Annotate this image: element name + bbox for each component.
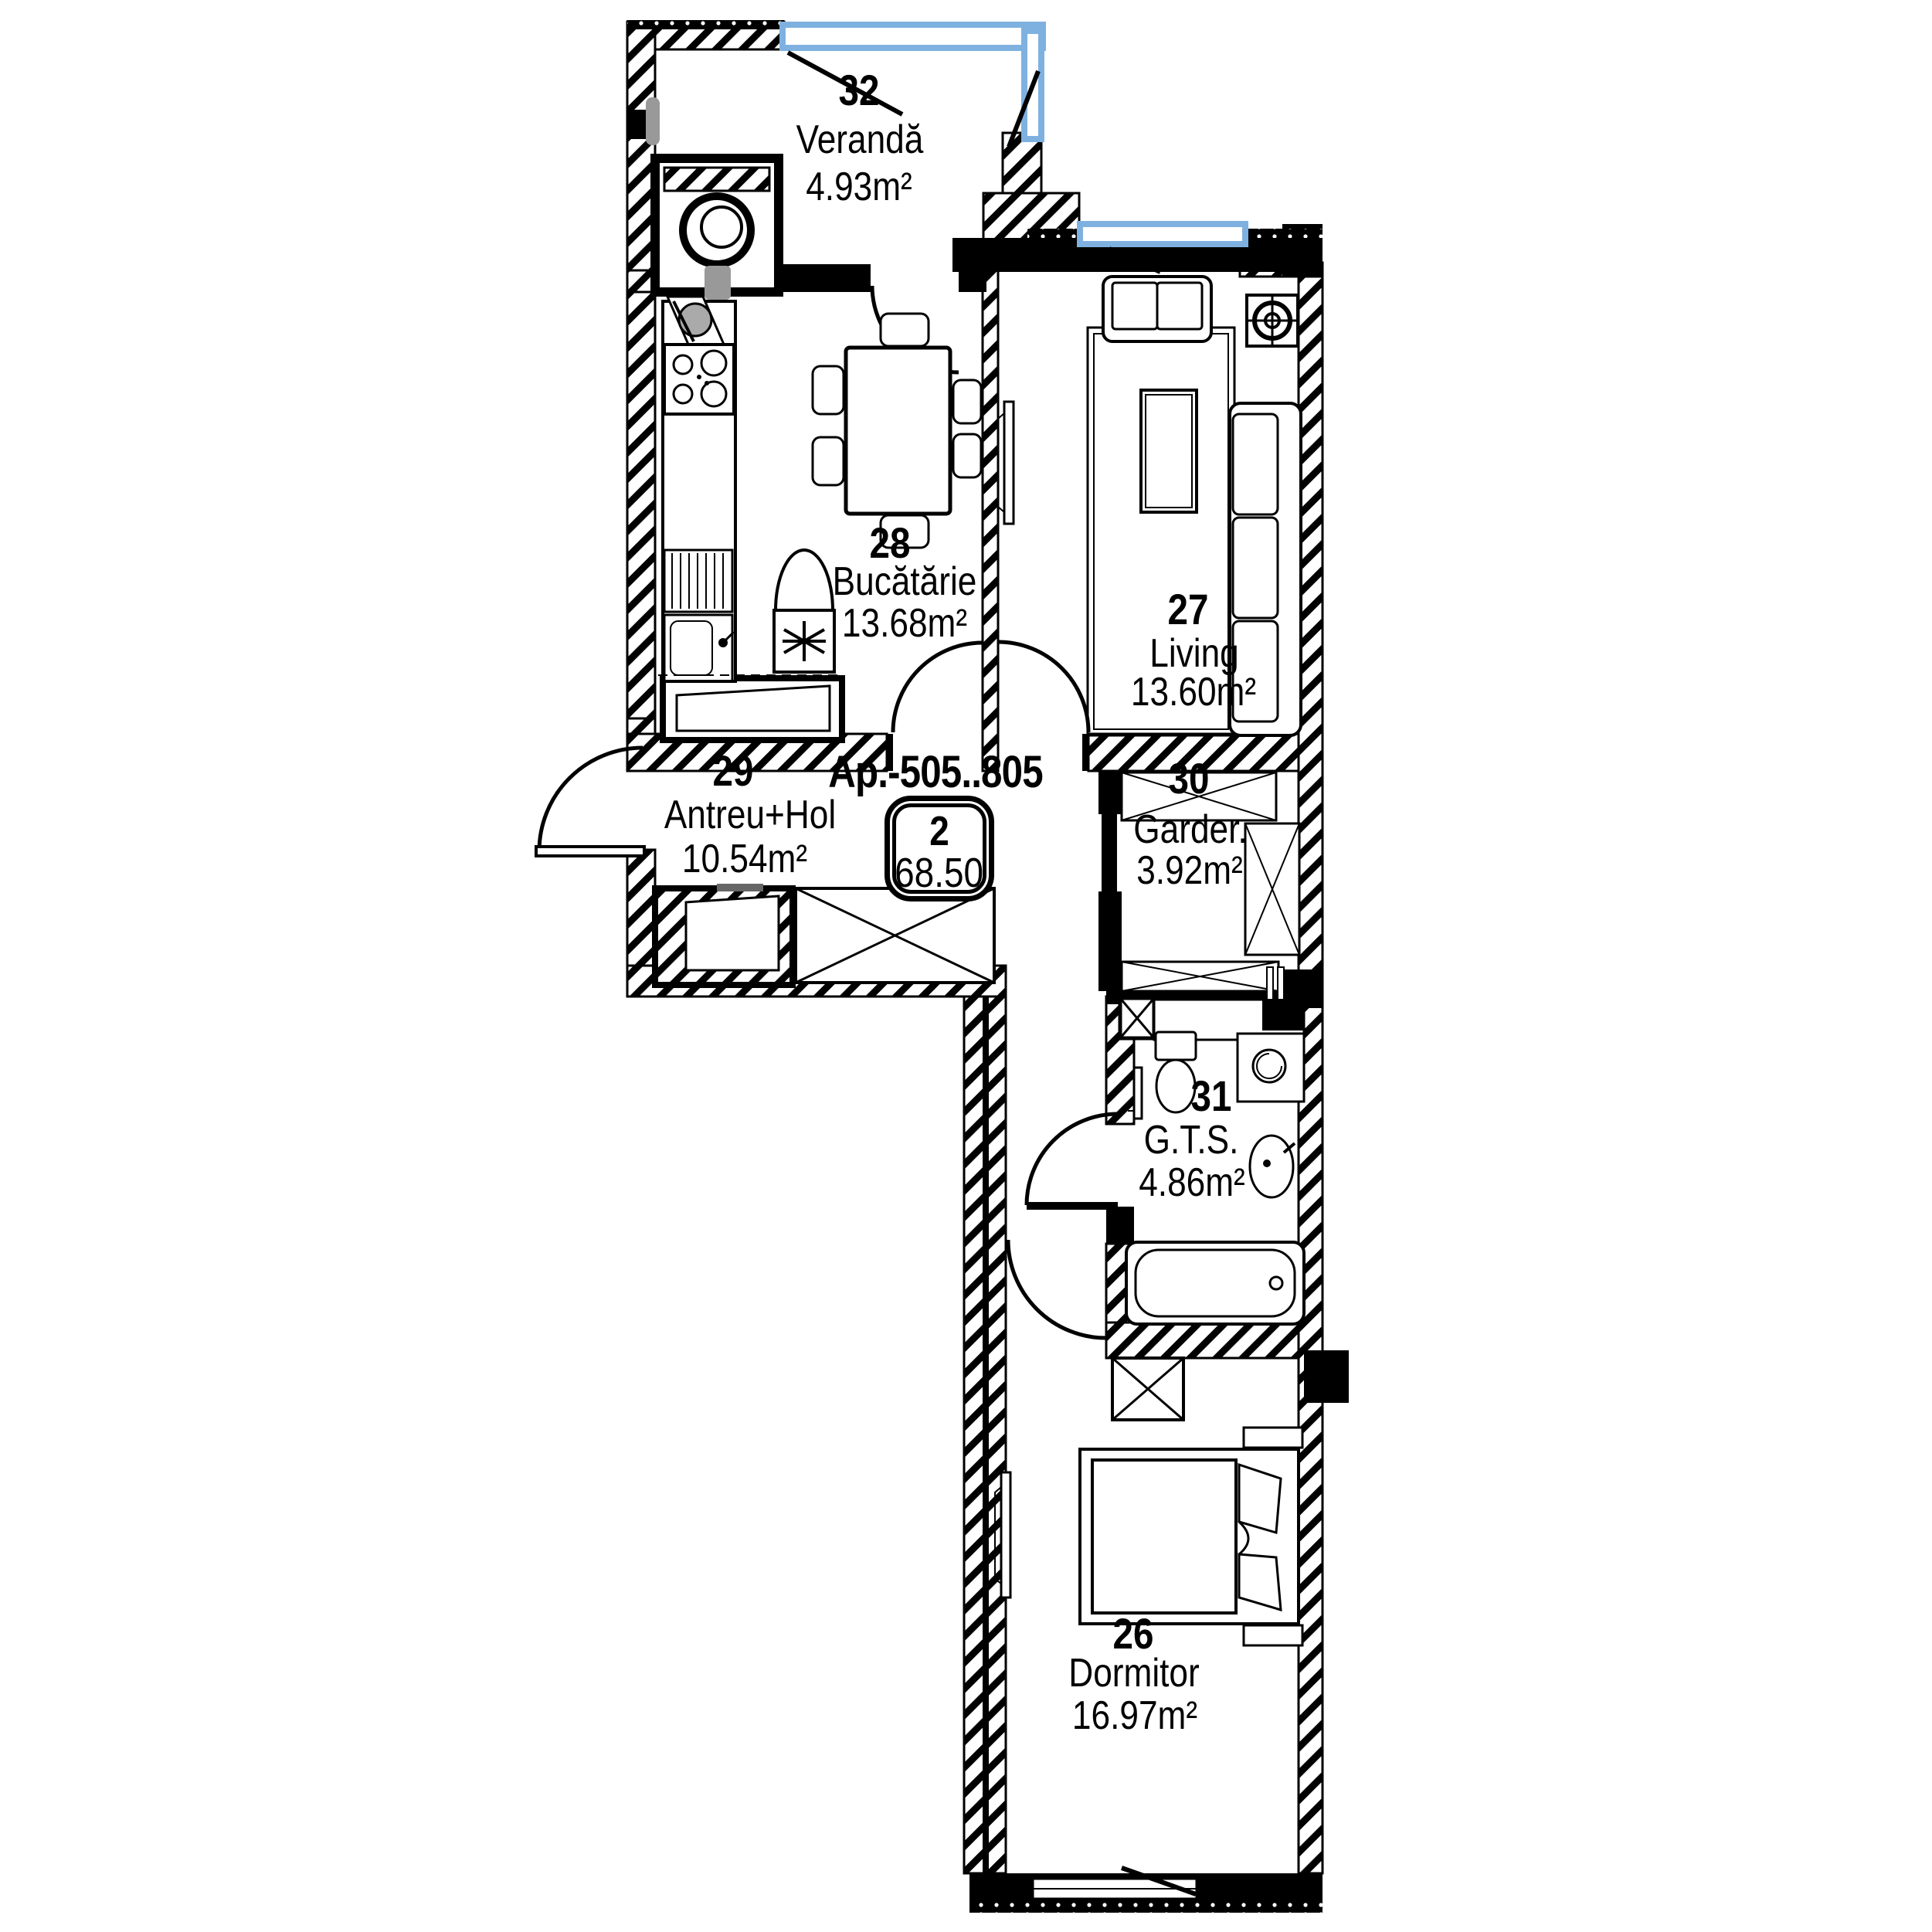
wardrobe-right-icon <box>1245 823 1299 955</box>
room-name-bedroom: Dormitor <box>1068 1653 1199 1693</box>
bedroom-wardrobe-icon <box>1112 1358 1183 1420</box>
room-name-living: Living <box>1149 633 1238 674</box>
room-name-veranda: Verandă <box>796 120 924 160</box>
room-area-garderobe: 3.92m² <box>1136 851 1243 891</box>
living-door-arc <box>998 642 1088 732</box>
badge-room-count: 2 <box>929 810 949 852</box>
room-name-hall: Antreu+Hol <box>664 795 836 835</box>
plan-drawing <box>0 0 1932 1932</box>
room-number-veranda: 32 <box>839 69 880 112</box>
room-number-garderobe: 30 <box>1169 757 1210 800</box>
bathtub-icon <box>1126 1242 1304 1324</box>
room-number-hall: 29 <box>713 749 754 793</box>
room-area-hall: 10.54m² <box>682 839 807 879</box>
stove-icon <box>664 345 734 414</box>
shower-icon <box>1238 1034 1304 1102</box>
loveseat-icon <box>1103 277 1211 341</box>
room-name-kitchen: Bucătărie <box>833 562 977 602</box>
coffee-table-icon <box>1141 390 1197 512</box>
room-name-bathroom: G.T.S. <box>1144 1120 1239 1160</box>
room-number-living: 27 <box>1168 588 1209 631</box>
room-area-bathroom: 4.86m² <box>1139 1163 1245 1203</box>
room-area-living: 13.60m² <box>1131 672 1256 712</box>
apartment-badge: 2 68.50 <box>885 796 994 901</box>
boiler-icon <box>774 610 834 672</box>
badge-total-area: 68.50 <box>895 852 984 894</box>
nightstand-icon <box>1244 1428 1302 1448</box>
dining-table-icon <box>813 314 981 548</box>
bath-shaft-icon <box>1120 998 1154 1038</box>
room-number-kitchen: 28 <box>870 521 911 565</box>
bed-icon <box>1080 1449 1299 1624</box>
room-name-garderobe: Garder. <box>1133 810 1247 850</box>
washbasin-icon <box>1250 1136 1295 1197</box>
veranda-top-window <box>783 25 1043 48</box>
room-area-kitchen: 13.68m² <box>842 603 967 643</box>
wardrobe-bottom-icon <box>1122 962 1278 991</box>
apartment-label: Ap.-505..805 <box>828 750 1043 795</box>
bathroom-door-arc <box>1027 1114 1118 1205</box>
pipe-icon <box>646 97 660 145</box>
kitchen-door-arc <box>893 643 983 732</box>
room-number-bathroom: 31 <box>1191 1075 1232 1118</box>
boiler-door-arc <box>776 550 833 610</box>
ceiling-fan-icon <box>1247 295 1298 346</box>
bedroom-door-arc <box>1008 1240 1106 1338</box>
toilet-icon <box>1156 1032 1196 1112</box>
nightstand-icon <box>1244 1625 1302 1645</box>
entry-door-leaf <box>536 847 644 856</box>
apartment-badge-inner: 2 68.50 <box>892 803 986 894</box>
radiator-living-icon <box>998 402 1014 524</box>
room-area-veranda: 4.93m² <box>806 167 912 207</box>
floor-plan: 32 Verandă 4.93m² 28 Bucătărie 13.68m² 2… <box>0 0 1932 1932</box>
living-window <box>1080 224 1245 244</box>
hall-wardrobe-icon <box>796 888 994 983</box>
room-area-bedroom: 16.97m² <box>1072 1696 1197 1736</box>
room-number-bedroom: 26 <box>1113 1612 1154 1655</box>
